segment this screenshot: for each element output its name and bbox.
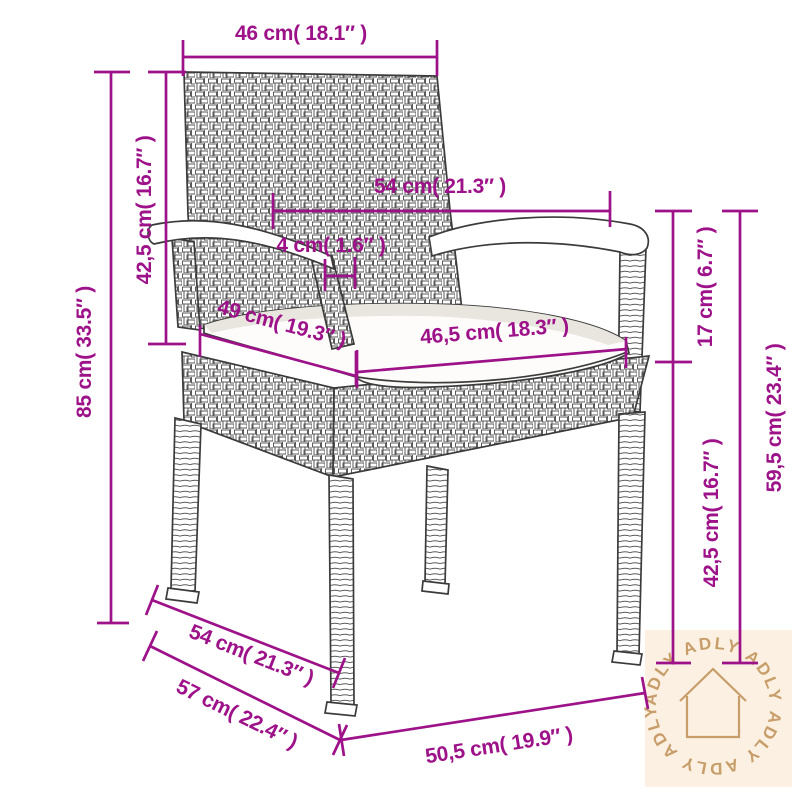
dim-label-base-width: 50,5 cm( 19.9″ ) — [424, 723, 575, 769]
dim-label-base-depth: 54 cm( 21.3″ ) — [186, 620, 317, 690]
chair-leg-front-left — [171, 418, 201, 592]
dim-label-armrest-height: 59,5 cm( 23.4″ ) — [763, 344, 786, 493]
dim-total-height: 85 cm( 33.5″ ) — [73, 72, 130, 623]
chair-apron-front — [182, 352, 334, 477]
dim-back-width: 46 cm( 18.1″ ) — [183, 22, 437, 76]
dim-label-back-height: 42,5 cm( 16.7″ ) — [133, 136, 156, 285]
dim-armrest-height: 59,5 cm( 23.4″ ) — [722, 211, 786, 663]
chair-leg-back-right — [617, 412, 645, 655]
chair-leg-foot — [325, 702, 357, 716]
dim-label-armrest-width: 4 cm( 1.6″ ) — [276, 234, 385, 257]
dim-label-total-depth: 57 cm( 22.4″ ) — [173, 675, 302, 754]
dimension-diagram-page: ADLY ADLY ADLY ADLY ADLY ADLY 46 cm( 18.… — [0, 0, 800, 800]
chair-illustration — [148, 72, 649, 716]
dim-label-back-width: 46 cm( 18.1″ ) — [235, 22, 367, 45]
dim-label-armrest-span: 54 cm( 21.3″ ) — [374, 175, 506, 198]
chair-leg-foot — [612, 651, 642, 665]
dim-armrest-to-seat: 17 cm( 6.7″ ) — [655, 211, 717, 362]
dim-label-total-height: 85 cm( 33.5″ ) — [73, 286, 96, 418]
dim-base-width: 50,5 cm( 19.9″ ) — [339, 677, 648, 768]
chair-dimension-diagram: ADLY ADLY ADLY ADLY ADLY ADLY 46 cm( 18.… — [0, 0, 800, 800]
right-armrest — [429, 217, 648, 256]
dim-label-seat-height: 42,5 cm( 16.7″ ) — [700, 439, 723, 588]
dim-label-armrest-to-seat: 17 cm( 6.7″ ) — [694, 227, 717, 348]
chair-leg-back-center — [425, 466, 448, 585]
dim-seat-height: 42,5 cm( 16.7″ ) — [656, 363, 723, 663]
chair-leg-foot — [422, 581, 449, 594]
brand-watermark: ADLY ADLY ADLY ADLY ADLY ADLY — [641, 630, 792, 787]
